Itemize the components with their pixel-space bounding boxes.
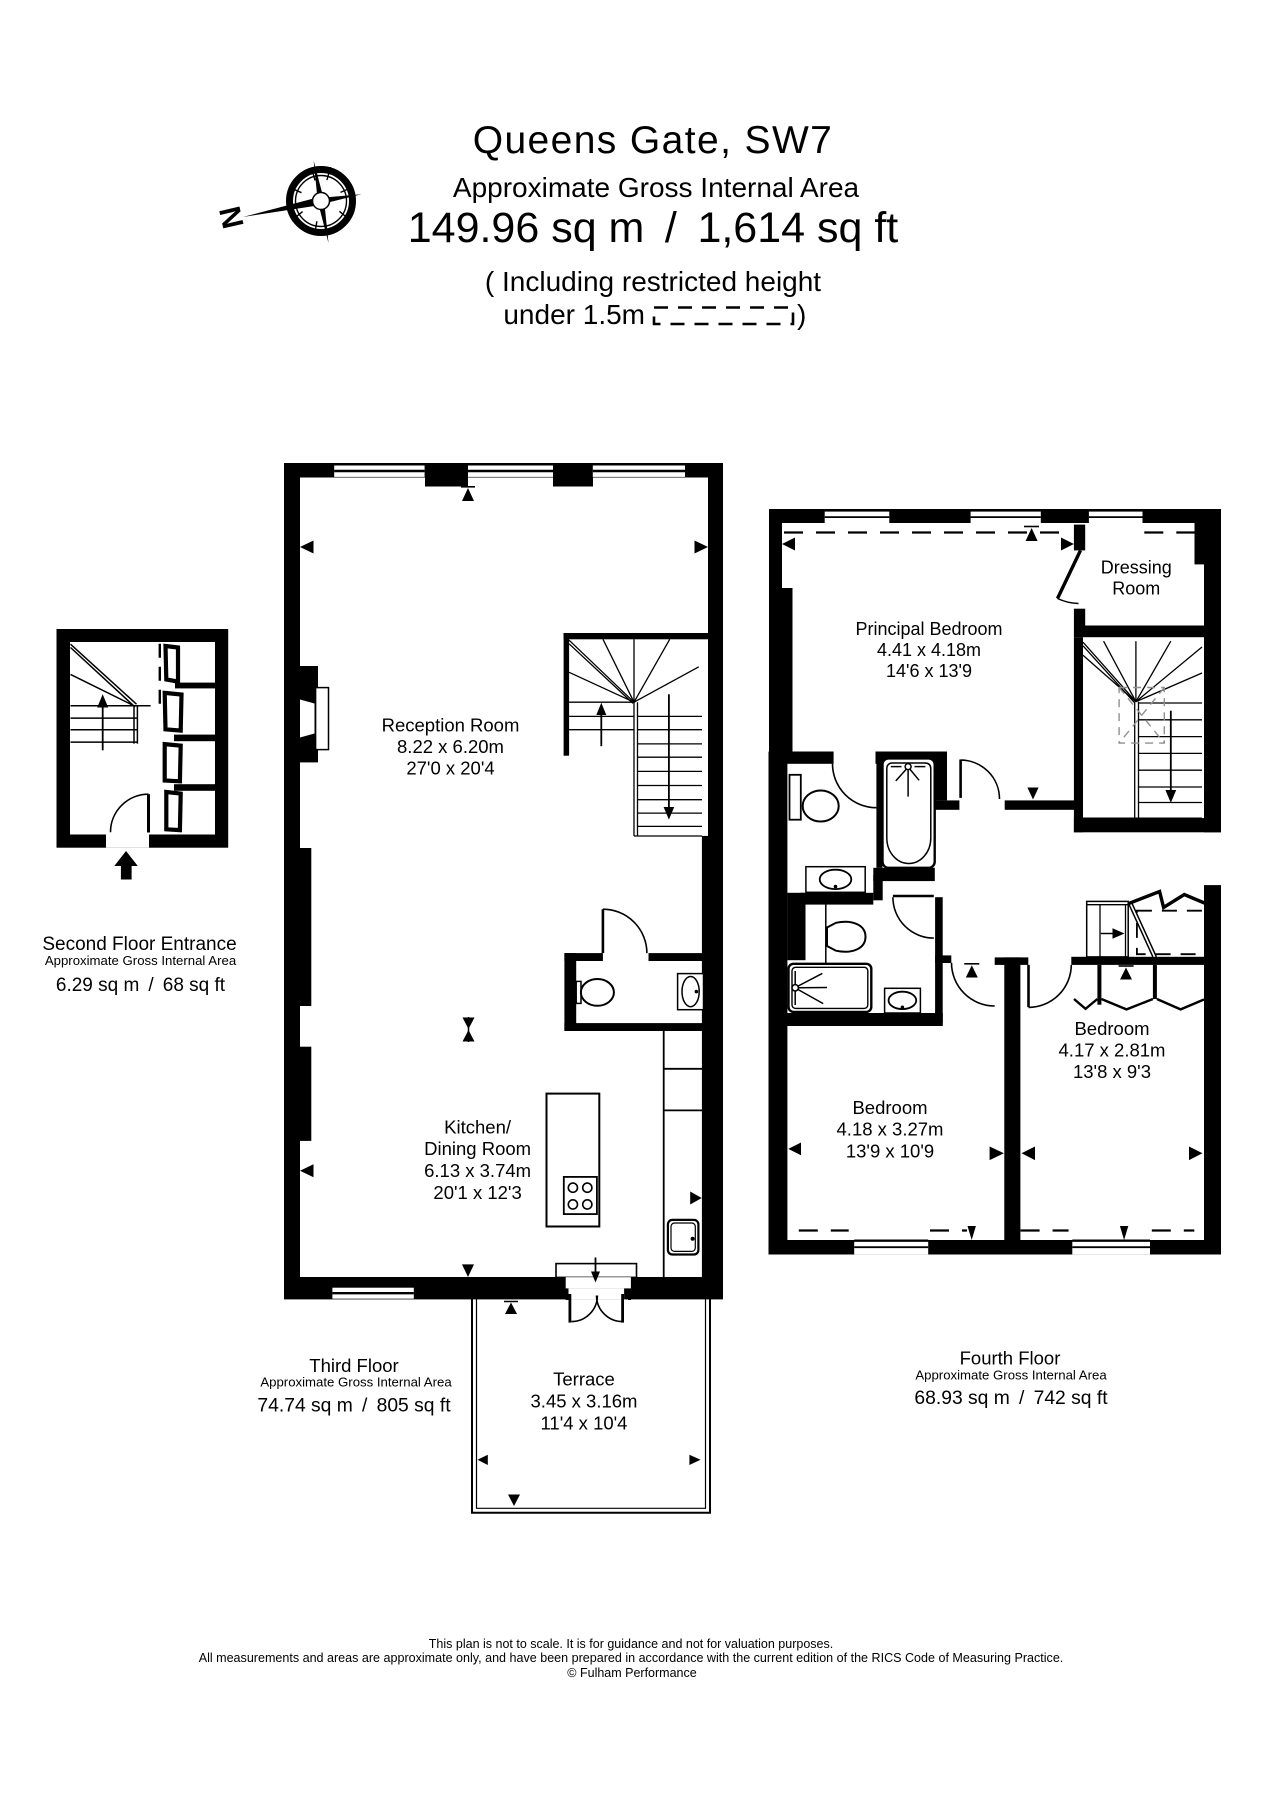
svg-text:Approximate Gross Internal Are: Approximate Gross Internal Area: [915, 1368, 1107, 1383]
svg-text:13'9 x 10'9: 13'9 x 10'9: [846, 1140, 934, 1161]
svg-text:Principal Bedroom: Principal Bedroom: [855, 619, 1002, 639]
svg-text:Queens Gate, SW7: Queens Gate, SW7: [473, 119, 834, 162]
svg-text:74.74 sq m / 805 sq ft: 74.74 sq m / 805 sq ft: [257, 1396, 451, 1417]
svg-text:This plan is not to scale. It: This plan is not to scale. It is for gui…: [429, 1637, 833, 1651]
svg-text:Approximate Gross Internal Are: Approximate Gross Internal Area: [260, 1375, 452, 1390]
svg-text:13'8 x 9'3: 13'8 x 9'3: [1073, 1061, 1151, 1082]
svg-text:20'1 x 12'3: 20'1 x 12'3: [433, 1182, 521, 1203]
svg-text:4.18 x 3.27m: 4.18 x 3.27m: [837, 1119, 944, 1140]
svg-text:© Fulham Performance: © Fulham Performance: [567, 1666, 696, 1680]
svg-text:( Including restricted height: ( Including restricted height: [485, 266, 821, 297]
svg-text:Room: Room: [1112, 578, 1160, 598]
svg-text:Approximate Gross Internal Are: Approximate Gross Internal Area: [45, 953, 237, 968]
svg-text:Dressing: Dressing: [1101, 558, 1172, 578]
svg-text:27'0 x 20'4: 27'0 x 20'4: [406, 758, 494, 779]
svg-text:): ): [797, 299, 806, 330]
svg-text:under 1.5m: under 1.5m: [503, 299, 645, 330]
svg-text:3.45 x 3.16m: 3.45 x 3.16m: [531, 1391, 638, 1412]
svg-text:Kitchen/: Kitchen/: [444, 1116, 512, 1137]
svg-text:68.93 sq m / 742 sq ft: 68.93 sq m / 742 sq ft: [914, 1388, 1108, 1409]
svg-text:Approximate Gross Internal Are: Approximate Gross Internal Area: [453, 172, 860, 203]
svg-text:11'4 x 10'4: 11'4 x 10'4: [541, 1413, 628, 1434]
svg-text:All measurements and areas are: All measurements and areas are approxima…: [199, 1651, 1064, 1665]
svg-text:8.22 x 6.20m: 8.22 x 6.20m: [397, 736, 504, 757]
svg-text:Terrace: Terrace: [553, 1368, 615, 1389]
svg-text:Dining Room: Dining Room: [424, 1138, 531, 1159]
svg-text:Bedroom: Bedroom: [1074, 1018, 1149, 1039]
svg-text:6.29 sq m / 68 sq ft: 6.29 sq m / 68 sq ft: [56, 975, 226, 996]
svg-text:149.96 sq m / 1,614 sq ft: 149.96 sq m / 1,614 sq ft: [408, 204, 899, 252]
svg-text:Second Floor Entrance: Second Floor Entrance: [42, 934, 236, 955]
svg-text:14'6 x 13'9: 14'6 x 13'9: [886, 661, 972, 681]
svg-text:Third Floor: Third Floor: [309, 1355, 398, 1376]
svg-text:Fourth Floor: Fourth Floor: [960, 1348, 1061, 1369]
svg-text:Reception Room: Reception Room: [382, 714, 520, 735]
svg-text:4.17 x 2.81m: 4.17 x 2.81m: [1059, 1040, 1166, 1061]
svg-text:6.13 x 3.74m: 6.13 x 3.74m: [424, 1160, 531, 1181]
svg-text:Bedroom: Bedroom: [852, 1097, 927, 1118]
svg-text:4.41 x 4.18m: 4.41 x 4.18m: [877, 640, 981, 660]
